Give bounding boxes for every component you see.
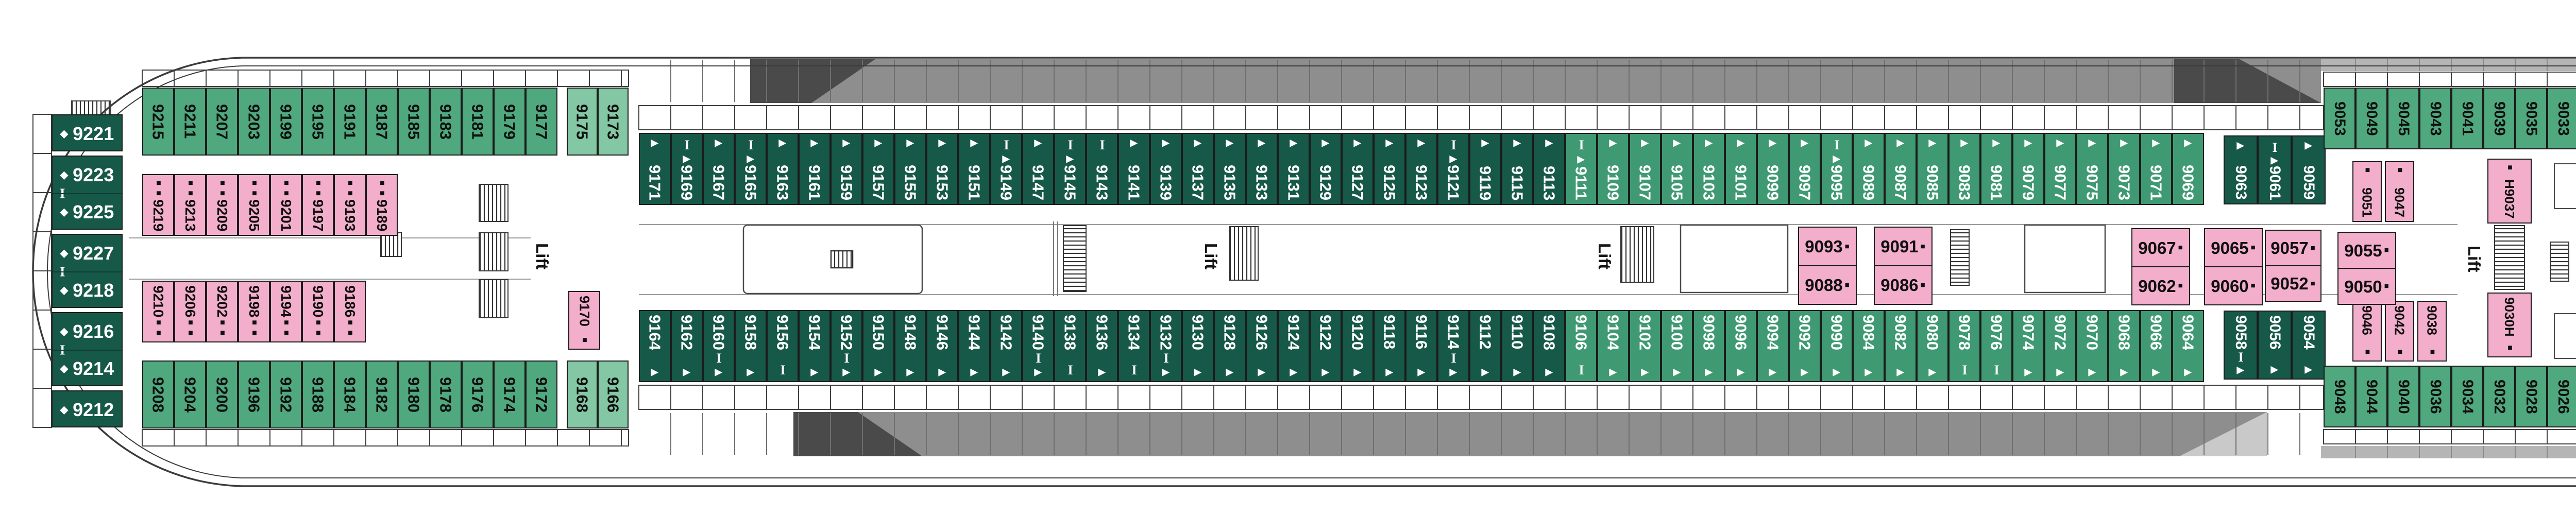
cabin-9131[interactable]: ▶9131 — [1278, 133, 1310, 205]
cabin-9043[interactable]: 9043 — [2419, 88, 2451, 149]
cabin-9159[interactable]: ▶9159 — [831, 133, 862, 205]
cabin-9136[interactable]: 9136▶ — [1086, 310, 1118, 382]
cabin-9178[interactable]: 9178 — [430, 360, 462, 428]
cabin-9078[interactable]: 9078I — [1948, 310, 1980, 382]
interior-cabin-pair: 9091■9086■ — [1874, 227, 1933, 305]
sofabed-square-icon: ■ — [2311, 280, 2316, 288]
cabin-9162[interactable]: 9162▶ — [671, 310, 703, 382]
triangle-berth-icon: ▶ — [1608, 138, 1618, 148]
deck-plan: 9215921192079203919991959191918791859183… — [0, 0, 2576, 515]
cabin-number: 9113 — [1541, 166, 1557, 200]
cabin-number: 9149 — [998, 165, 1014, 200]
cabin-number: 9061 — [2267, 166, 2282, 200]
interior-cabin-pair: 9065■9060■ — [2204, 228, 2263, 305]
cabin-9145[interactable]: I▶9145 — [1054, 133, 1086, 205]
cabin-9055[interactable]: 9055■ — [2338, 233, 2395, 268]
cabin-9183[interactable]: 9183 — [430, 88, 462, 156]
cabin-9202[interactable]: 9202■■ — [206, 281, 238, 342]
cabin-9047[interactable]: ■9047 — [2385, 161, 2414, 222]
cabin-9128[interactable]: 9128▶ — [1214, 310, 1246, 382]
cabin-9170[interactable]: 9170■ — [568, 291, 600, 350]
cabin-9134[interactable]: 9134I — [1118, 310, 1150, 382]
cabin-9056[interactable]: 9056▶ — [2258, 311, 2292, 380]
cabin-number: 9078 — [1957, 315, 1973, 350]
diamond-suite-icon: ◆ — [60, 207, 68, 217]
cabin-9042[interactable]: 9042■ — [2385, 301, 2414, 362]
cabin-9198[interactable]: 9198■■ — [238, 281, 270, 342]
cabin-9119[interactable]: ▶9119 — [1469, 133, 1501, 205]
cabin-9142[interactable]: 9142▶ — [990, 310, 1022, 382]
cabin-9213[interactable]: ■■9213 — [174, 174, 206, 236]
ibeam-berth-icon: I — [776, 363, 789, 377]
triangle-berth-icon: ▶ — [1257, 138, 1266, 148]
cabin-9085[interactable]: ▶9085 — [1917, 133, 1948, 205]
cabin-9073[interactable]: ▶9073 — [2108, 133, 2140, 205]
triangle-berth-icon: ▶ — [1449, 153, 1458, 164]
cabin-9080[interactable]: 9080▶ — [1917, 310, 1948, 382]
cabin-9076[interactable]: 9076I — [1980, 310, 2012, 382]
triangle-berth-icon: ▶ — [1321, 367, 1330, 377]
triangle-berth-icon: ▶ — [1417, 138, 1426, 148]
cabin-9114[interactable]: 9114I▶ — [1437, 310, 1469, 382]
cabin-9124[interactable]: 9124▶ — [1278, 310, 1310, 382]
cabin-9161[interactable]: ▶9161 — [799, 133, 831, 205]
triangle-berth-icon: ▶ — [1800, 367, 1809, 377]
cabin-9104[interactable]: 9104▶ — [1597, 310, 1629, 382]
ibeam-berth-icon: I — [1574, 363, 1588, 377]
triangle-berth-icon: ▶ — [906, 138, 915, 148]
cabin-number: 9204 — [182, 377, 198, 413]
cabin-9188[interactable]: 9188 — [302, 360, 334, 428]
cabin-number: 9106 — [1573, 315, 1589, 350]
cabin-number: 9188 — [310, 377, 326, 413]
cabin-9219[interactable]: ■■9219 — [142, 174, 174, 236]
cabin-9212[interactable]: ◆9212 — [53, 391, 122, 428]
triangle-berth-icon: ▶ — [1832, 153, 1841, 164]
cabin-number: 9126 — [1254, 315, 1270, 350]
cabin-9026[interactable]: 9026 — [2547, 366, 2576, 427]
cabin-9138[interactable]: 9138I — [1054, 310, 1086, 382]
stairs-icon — [1951, 230, 1969, 285]
cabin-9164[interactable]: 9164▶ — [639, 310, 671, 382]
cabin-9157[interactable]: ▶9157 — [862, 133, 894, 205]
cabin-9153[interactable]: ▶9153 — [926, 133, 958, 205]
cabin-9038[interactable]: 9038■ — [2417, 301, 2447, 362]
cabin-9199[interactable]: 9199 — [270, 88, 302, 156]
sofabed-square-icon: ■ — [314, 189, 323, 198]
ibeam-berth-icon: I — [1958, 363, 1971, 377]
cabin-9069[interactable]: ▶9069 — [2172, 133, 2204, 205]
cabin-number: 9093 — [1805, 238, 1842, 255]
cabin-9175[interactable]: 9175 — [567, 88, 598, 156]
triangle-berth-icon: ▶ — [1161, 138, 1171, 148]
cabin-9151[interactable]: ▶9151 — [958, 133, 990, 205]
cabin-9144[interactable]: 9144▶ — [958, 310, 990, 382]
cabin-9090[interactable]: 9090▶ — [1821, 310, 1853, 382]
cabin-9168[interactable]: 9168 — [567, 360, 598, 428]
cabin-9095[interactable]: I▶9095 — [1821, 133, 1853, 205]
triangle-berth-icon: ▶ — [2024, 138, 2033, 148]
triangle-berth-icon: ▶ — [1928, 367, 1937, 377]
cabin-9141[interactable]: ▶9141 — [1118, 133, 1150, 205]
cabin-9040[interactable]: 9040 — [2387, 366, 2419, 427]
cabin-number: 9139 — [1158, 165, 1174, 200]
cabin-number: 9169 — [679, 165, 695, 200]
triangle-berth-icon: ▶ — [906, 367, 915, 377]
suite-group: ◆9223◆9225I — [52, 156, 123, 230]
cabin-9171[interactable]: ▶9171 — [639, 133, 671, 205]
cabin-number: 9040 — [2396, 380, 2411, 414]
cabin-9094[interactable]: 9094▶ — [1757, 310, 1789, 382]
triangle-berth-icon: ▶ — [1353, 367, 1362, 377]
cabin-9201[interactable]: ■■9201 — [270, 174, 302, 236]
triangle-berth-icon: ▶ — [1321, 138, 1330, 148]
cabin-number: 9087 — [1893, 165, 1909, 200]
sofabed-square-icon: ■ — [2251, 282, 2256, 290]
ibeam-berth-icon: I — [1830, 138, 1843, 152]
cabin-9110[interactable]: 9110▶ — [1501, 310, 1533, 382]
cabin-9028[interactable]: 9028 — [2515, 366, 2547, 427]
cabin-9032[interactable]: 9032 — [2483, 366, 2515, 427]
sofabed-square-icon: ■ — [1921, 243, 1926, 251]
cabin-number: 9038 — [2426, 305, 2439, 335]
cabin-9039[interactable]: 9039 — [2483, 88, 2515, 149]
cabin-9192[interactable]: 9192 — [270, 360, 302, 428]
cabin-9200[interactable]: 9200 — [206, 360, 238, 428]
cabin-9106[interactable]: 9106I — [1565, 310, 1597, 382]
cabin-9172[interactable]: 9172 — [526, 360, 557, 428]
cabin-9121[interactable]: I▶9121 — [1437, 133, 1469, 205]
cabin-number: 9189 — [375, 199, 389, 231]
triangle-berth-icon: ▶ — [1640, 367, 1650, 377]
cabin-9120[interactable]: 9120▶ — [1342, 310, 1374, 382]
cabin-number: 9181 — [470, 104, 486, 140]
cabin-9125[interactable]: ▶9125 — [1374, 133, 1405, 205]
sofabed-square-icon: ■ — [346, 318, 354, 328]
cabin-9048[interactable]: 9048 — [2324, 366, 2355, 427]
cabin-number: 9060 — [2211, 278, 2248, 295]
cabin-number: 9154 — [807, 315, 823, 350]
triangle-berth-icon: ▶ — [1225, 367, 1234, 377]
cabin-9096[interactable]: 9096▶ — [1725, 310, 1757, 382]
cabin-number: 9193 — [343, 199, 357, 231]
cabin-number: 9142 — [998, 315, 1014, 350]
cabin-9072[interactable]: 9072▶ — [2044, 310, 2076, 382]
interior-room — [1681, 225, 1788, 293]
sofabed-square-icon: ■ — [218, 189, 227, 198]
cabin-9147[interactable]: ▶9147 — [1022, 133, 1054, 205]
sofabed-square-icon: ■ — [2363, 166, 2371, 175]
sofabed-square-icon: ■ — [218, 318, 227, 328]
cabin-9113[interactable]: ▶9113 — [1533, 133, 1565, 205]
cabin-9086[interactable]: 9086■ — [1875, 265, 1931, 304]
cabin-9118[interactable]: 9118▶ — [1374, 310, 1405, 382]
sofabed-square-icon: ■ — [346, 329, 354, 338]
cabin-9111[interactable]: I▶9111 — [1565, 133, 1597, 205]
cabin-number: 9083 — [1957, 165, 1973, 200]
cabin-number: 9202 — [215, 285, 229, 317]
ibeam-berth-icon: I — [712, 351, 725, 366]
cabin-number: 9055 — [2344, 242, 2382, 259]
cabin-9127[interactable]: ▶9127 — [1342, 133, 1374, 205]
cabin-9209[interactable]: ■■9209 — [206, 174, 238, 236]
cabin-9062[interactable]: 9062■ — [2132, 266, 2189, 304]
cabin-number: 9166 — [605, 377, 621, 413]
cabin-9182[interactable]: 9182 — [366, 360, 398, 428]
cabin-9034[interactable]: 9034 — [2451, 366, 2483, 427]
cabin-number: 9048 — [2332, 380, 2347, 414]
cabin-9030H[interactable]: 9030H■ — [2487, 293, 2532, 357]
cabin-number: 9084 — [1861, 315, 1877, 350]
cabin-9036[interactable]: 9036 — [2419, 366, 2451, 427]
cabin-9207[interactable]: 9207 — [206, 88, 238, 156]
cabin-9179[interactable]: 9179 — [494, 88, 526, 156]
cabin-number: 9172 — [534, 377, 550, 413]
cabin-9211[interactable]: 9211 — [174, 88, 206, 156]
cabin-9158[interactable]: 9158▶ — [735, 310, 767, 382]
triangle-berth-icon: ▶ — [714, 367, 723, 377]
cabin-9196[interactable]: 9196 — [238, 360, 270, 428]
triangle-berth-icon: ▶ — [2304, 364, 2313, 375]
cabin-9064[interactable]: 9064▶ — [2172, 310, 2204, 382]
cabin-9084[interactable]: 9084▶ — [1853, 310, 1885, 382]
suite-group: ◆9227◆9218I — [52, 234, 123, 308]
cabin-9180[interactable]: 9180 — [398, 360, 430, 428]
lift-aft-label: Lift — [531, 231, 553, 282]
ibeam-berth-icon: I — [1031, 351, 1045, 366]
cabin-9149[interactable]: I▶9149 — [990, 133, 1022, 205]
cabin-9123[interactable]: ▶9123 — [1405, 133, 1437, 205]
ibeam-berth-icon: I — [999, 138, 1013, 152]
cabin-9184[interactable]: 9184 — [334, 360, 366, 428]
triangle-berth-icon: ▶ — [1353, 138, 1362, 148]
cabin-9060[interactable]: 9060■ — [2205, 266, 2262, 304]
stairs-icon — [479, 233, 508, 271]
cabin-9077[interactable]: ▶9077 — [2044, 133, 2076, 205]
cabin-9204[interactable]: 9204 — [174, 360, 206, 428]
cabin-9181[interactable]: 9181 — [462, 88, 494, 156]
cabin-9112[interactable]: 9112▶ — [1469, 310, 1501, 382]
cabin-9059[interactable]: ▶9059 — [2292, 135, 2326, 204]
stairs-icon — [1063, 226, 1086, 291]
cabin-number: 9047 — [2393, 187, 2406, 217]
cabin-9129[interactable]: ▶9129 — [1310, 133, 1342, 205]
cabin-9176[interactable]: 9176 — [462, 360, 494, 428]
cabin-9140[interactable]: 9140I▶ — [1022, 310, 1054, 382]
cabin-number: 9208 — [150, 377, 166, 413]
cabin-9156[interactable]: 9156I — [767, 310, 799, 382]
cabin-9122[interactable]: 9122▶ — [1310, 310, 1342, 382]
cabin-9092[interactable]: 9092▶ — [1789, 310, 1821, 382]
cabin-9197[interactable]: ■■9197 — [302, 174, 334, 236]
cabin-number: 9042 — [2393, 305, 2406, 335]
cabin-9187[interactable]: 9187 — [366, 88, 398, 156]
cabin-9089[interactable]: ▶9089 — [1853, 133, 1885, 205]
cabin-9075[interactable]: ▶9075 — [2076, 133, 2108, 205]
triangle-berth-icon: ▶ — [2270, 364, 2279, 375]
triangle-berth-icon: ▶ — [2151, 138, 2161, 148]
cabin-9148[interactable]: 9148▶ — [894, 310, 926, 382]
cabin-9186[interactable]: 9186■■ — [334, 281, 366, 342]
cabin-9079[interactable]: ▶9079 — [2012, 133, 2044, 205]
deck-shade-band — [793, 412, 2267, 456]
cabin-9068[interactable]: 9068▶ — [2108, 310, 2140, 382]
sofabed-square-icon: ■ — [186, 179, 195, 188]
cabin-9133[interactable]: ▶9133 — [1246, 133, 1278, 205]
cabin-9190[interactable]: 9190■■ — [302, 281, 334, 342]
cabin-number: 9051 — [2361, 187, 2374, 217]
cabin-9101[interactable]: ▶9101 — [1725, 133, 1757, 205]
cabin-9066[interactable]: 9066▶ — [2140, 310, 2172, 382]
cabin-9139[interactable]: ▶9139 — [1150, 133, 1182, 205]
cabin-9035[interactable]: 9035 — [2515, 88, 2547, 149]
cabin-number: 9050 — [2344, 278, 2382, 295]
sofabed-square-icon: ■ — [282, 179, 291, 188]
cabin-9160[interactable]: 9160I▶ — [703, 310, 735, 382]
cabin-9163[interactable]: ▶9163 — [767, 133, 799, 205]
cabin-number: 9183 — [438, 104, 454, 140]
cabin-9167[interactable]: ▶9167 — [703, 133, 735, 205]
cabin-H9037[interactable]: ■H9037 — [2487, 159, 2532, 224]
cabin-9049[interactable]: 9049 — [2355, 88, 2387, 149]
cabin-9099[interactable]: ▶9099 — [1757, 133, 1789, 205]
cabin-number: 9045 — [2396, 101, 2411, 136]
sofabed-square-icon: ■ — [154, 179, 163, 188]
cabin-9044[interactable]: 9044 — [2355, 366, 2387, 427]
cabin-9132[interactable]: 9132I▶ — [1150, 310, 1182, 382]
cabin-9143[interactable]: I9143 — [1086, 133, 1118, 205]
cabin-9054[interactable]: 9054▶ — [2292, 311, 2326, 380]
cabin-9107[interactable]: ▶9107 — [1629, 133, 1661, 205]
cabin-number: 9116 — [1414, 315, 1430, 349]
cabin-9155[interactable]: ▶9155 — [894, 133, 926, 205]
balcony-strip — [2324, 72, 2576, 87]
cabin-9165[interactable]: I▶9165 — [735, 133, 767, 205]
cabin-9097[interactable]: ▶9097 — [1789, 133, 1821, 205]
cabin-9126[interactable]: 9126▶ — [1246, 310, 1278, 382]
triangle-berth-icon: ▶ — [1768, 367, 1777, 377]
cabin-number: 9221 — [73, 125, 114, 143]
cabin-9166[interactable]: 9166 — [598, 360, 629, 428]
cabin-9108[interactable]: 9108▶ — [1533, 310, 1565, 382]
cabin-number: H9037 — [2503, 179, 2516, 219]
ibeam-berth-icon: I — [1063, 138, 1077, 152]
cabin-9083[interactable]: ▶9083 — [1948, 133, 1980, 205]
cabin-9053[interactable]: 9053 — [2324, 88, 2355, 149]
cabin-9194[interactable]: 9194■■ — [270, 281, 302, 342]
cabin-9115[interactable]: ▶9115 — [1501, 133, 1533, 205]
cabin-9189[interactable]: ■■9189 — [366, 174, 398, 236]
cabin-9205[interactable]: ■■9205 — [238, 174, 270, 236]
cabin-9191[interactable]: 9191 — [334, 88, 366, 156]
ibeam-berth-icon: I — [1063, 363, 1077, 377]
cabin-9177[interactable]: 9177 — [526, 88, 557, 156]
sofabed-square-icon: ■ — [314, 318, 323, 328]
cabin-9135[interactable]: ▶9135 — [1214, 133, 1246, 205]
cabin-9146[interactable]: 9146▶ — [926, 310, 958, 382]
cabin-number: 9101 — [1733, 165, 1749, 200]
cabin-9109[interactable]: ▶9109 — [1597, 133, 1629, 205]
cabin-9130[interactable]: 9130▶ — [1182, 310, 1214, 382]
cabin-9033[interactable]: 9033 — [2547, 88, 2576, 149]
cabin-number: 9088 — [1805, 277, 1842, 294]
cabin-9071[interactable]: ▶9071 — [2140, 133, 2172, 205]
cabin-9174[interactable]: 9174 — [494, 360, 526, 428]
sofabed-square-icon: ■ — [250, 189, 259, 198]
cabin-number: 9057 — [2270, 239, 2308, 256]
cabin-9116[interactable]: 9116▶ — [1405, 310, 1437, 382]
cabin-9195[interactable]: 9195 — [302, 88, 334, 156]
cabin-9152[interactable]: 9152I▶ — [831, 310, 862, 382]
cabin-9070[interactable]: 9070▶ — [2076, 310, 2108, 382]
triangle-berth-icon: ▶ — [2270, 155, 2279, 166]
cabin-number: 9194 — [279, 285, 293, 317]
cabin-9087[interactable]: ▶9087 — [1885, 133, 1917, 205]
cabin-9081[interactable]: ▶9081 — [1980, 133, 2012, 205]
cabin-number: 9195 — [310, 104, 326, 140]
cabin-number: 9044 — [2364, 380, 2379, 414]
cabin-9058[interactable]: 9058I▶ — [2224, 311, 2258, 380]
cabin-9137[interactable]: ▶9137 — [1182, 133, 1214, 205]
cabin-9052[interactable]: 9052■ — [2266, 265, 2320, 301]
cabin-number: 9135 — [1222, 165, 1238, 200]
cabin-9045[interactable]: 9045 — [2387, 88, 2419, 149]
cabin-9105[interactable]: ▶9105 — [1661, 133, 1693, 205]
cabin-9051[interactable]: ■9051 — [2352, 161, 2382, 222]
cabin-9098[interactable]: 9098▶ — [1693, 310, 1725, 382]
ibeam-berth-icon: I — [1159, 351, 1173, 366]
cabin-9206[interactable]: 9206■■ — [174, 281, 206, 342]
cabin-9050[interactable]: 9050■ — [2338, 268, 2395, 304]
cabin-9221[interactable]: ◆9221 — [53, 115, 122, 152]
triangle-berth-icon: ▶ — [1768, 138, 1777, 148]
cabin-9215[interactable]: 9215 — [142, 88, 174, 156]
triangle-berth-icon: ▶ — [1640, 138, 1650, 148]
cabin-9154[interactable]: 9154▶ — [799, 310, 831, 382]
cabin-9074[interactable]: 9074▶ — [2012, 310, 2044, 382]
cabin-9103[interactable]: ▶9103 — [1693, 133, 1725, 205]
cabin-9065[interactable]: 9065■ — [2205, 229, 2262, 266]
cabin-9046[interactable]: 9046■ — [2352, 301, 2382, 362]
cabin-9082[interactable]: 9082▶ — [1885, 310, 1917, 382]
cabin-9169[interactable]: I▶9169 — [671, 133, 703, 205]
cabin-9193[interactable]: ■■9193 — [334, 174, 366, 236]
cabin-9210[interactable]: 9210■■ — [142, 281, 174, 342]
cabin-9102[interactable]: 9102▶ — [1629, 310, 1661, 382]
cabin-9041[interactable]: 9041 — [2451, 88, 2483, 149]
sofabed-square-icon: ■ — [2384, 246, 2389, 254]
cabin-number: 9063 — [2233, 165, 2248, 200]
cabin-9063[interactable]: ▶9063 — [2224, 135, 2258, 204]
cabin-number: 9041 — [2460, 101, 2475, 136]
cabin-9057[interactable]: 9057■ — [2266, 231, 2320, 265]
cabin-number: 9179 — [502, 104, 518, 140]
cabin-9088[interactable]: 9088■ — [1799, 265, 1856, 304]
cabin-number: 9140 — [1030, 315, 1046, 350]
cabin-number: 9227 — [73, 244, 114, 263]
cabin-9203[interactable]: 9203 — [238, 88, 270, 156]
cabin-9150[interactable]: 9150▶ — [862, 310, 894, 382]
cabin-9093[interactable]: 9093■ — [1799, 228, 1856, 265]
cabin-9100[interactable]: 9100▶ — [1661, 310, 1693, 382]
cabin-9173[interactable]: 9173 — [598, 88, 629, 156]
cabin-9091[interactable]: 9091■ — [1875, 228, 1931, 265]
cabin-9061[interactable]: I▶9061 — [2258, 135, 2292, 204]
cabin-9185[interactable]: 9185 — [398, 88, 430, 156]
cabin-number: 9175 — [574, 104, 590, 140]
cabin-9208[interactable]: 9208 — [142, 360, 174, 428]
cabin-9067[interactable]: 9067■ — [2132, 229, 2189, 266]
